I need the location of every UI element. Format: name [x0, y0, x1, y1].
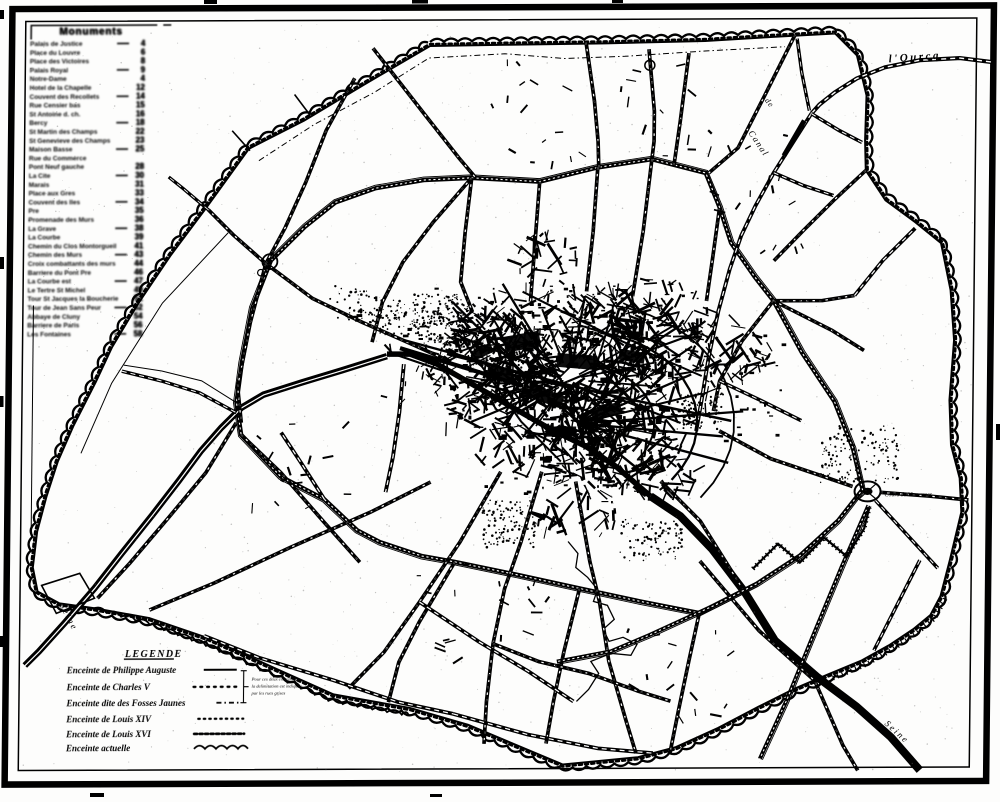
svg-text:Enceinte de Louis XIV: Enceinte de Louis XIV	[65, 714, 152, 724]
svg-text:par les rues grises: par les rues grises	[251, 691, 286, 696]
svg-text:Notre-Dame: Notre-Dame	[30, 76, 67, 83]
svg-text:Barriere de Paris: Barriere de Paris	[27, 322, 79, 329]
svg-text:Couvent des Iles: Couvent des Iles	[28, 199, 80, 206]
svg-text:Rue du Commerce: Rue du Commerce	[29, 155, 87, 162]
svg-text:la delimitation est indiquee: la delimitation est indiquee	[252, 683, 302, 688]
svg-text:Pour ces deux enceintes: Pour ces deux enceintes	[251, 676, 297, 681]
svg-text:Place aux Gres: Place aux Gres	[29, 190, 76, 197]
svg-text:Monuments: Monuments	[60, 27, 123, 38]
svg-text:Maison Basse: Maison Basse	[29, 146, 73, 153]
svg-text:Palais Royal: Palais Royal	[30, 67, 69, 74]
svg-text:St Genevieve des Champs: St Genevieve des Champs	[29, 138, 111, 145]
svg-text:Place des Victoires: Place des Victoires	[30, 58, 90, 65]
svg-text:Enceinte actuelle: Enceinte actuelle	[65, 743, 130, 753]
svg-text:Abbaye de Cluny: Abbaye de Cluny	[27, 314, 80, 321]
svg-text:La Courbe: La Courbe	[28, 234, 61, 241]
svg-text:Enceinte de Philippe Auguste: Enceinte de Philippe Auguste	[66, 665, 177, 675]
svg-text:Tour de Jean Sans Peur: Tour de Jean Sans Peur	[27, 305, 101, 312]
svg-text:Enceinte dite des Fosses Jaune: Enceinte dite des Fosses Jaunes	[65, 698, 186, 708]
svg-text:Chemin des Murs: Chemin des Murs	[28, 252, 83, 259]
svg-text:Rue Censier bas: Rue Censier bas	[29, 102, 80, 109]
svg-text:Barriere du Pont Pre: Barriere du Pont Pre	[28, 270, 92, 277]
svg-text:Cours de Vincennes: Cours de Vincennes	[884, 492, 932, 498]
svg-text:La Courbe est: La Courbe est	[28, 278, 72, 285]
svg-text:Les Fontaines: Les Fontaines	[27, 331, 71, 338]
svg-text:58: 58	[134, 329, 143, 338]
svg-text:St Martin des Champs: St Martin des Champs	[29, 129, 98, 136]
svg-text:Pre: Pre	[28, 208, 39, 215]
svg-text:Croix combattants des murs: Croix combattants des murs	[28, 261, 116, 268]
svg-text:Enceinte de Louis XVI: Enceinte de Louis XVI	[65, 729, 151, 739]
svg-text:Hotel de la Chapelle: Hotel de la Chapelle	[30, 85, 92, 92]
svg-text:Tour St Jacques la Boucherie: Tour St Jacques la Boucherie	[27, 296, 118, 303]
svg-text:Couvent des Recollets: Couvent des Recollets	[30, 94, 100, 101]
svg-text:Enceinte de Charles V: Enceinte de Charles V	[66, 682, 151, 692]
svg-text:St Antoine d. ch.: St Antoine d. ch.	[29, 111, 80, 118]
svg-text:La Cite: La Cite	[29, 173, 51, 180]
svg-text:Place du Louvre: Place du Louvre	[30, 50, 81, 57]
svg-text:Marais: Marais	[29, 182, 50, 189]
svg-text:Bercy: Bercy	[29, 120, 48, 127]
svg-text:La Grave: La Grave	[28, 226, 56, 233]
svg-text:Le Tertre St Michel: Le Tertre St Michel	[28, 287, 86, 294]
svg-text:Palais de Justice: Palais de Justice	[30, 41, 83, 48]
svg-text:25: 25	[136, 145, 145, 154]
svg-text:Pont Neuf gauche: Pont Neuf gauche	[29, 164, 85, 171]
svg-text:Promenade des Murs: Promenade des Murs	[28, 217, 94, 224]
svg-text:Chemin du Clos Montorgueil: Chemin du Clos Montorgueil	[28, 243, 117, 250]
